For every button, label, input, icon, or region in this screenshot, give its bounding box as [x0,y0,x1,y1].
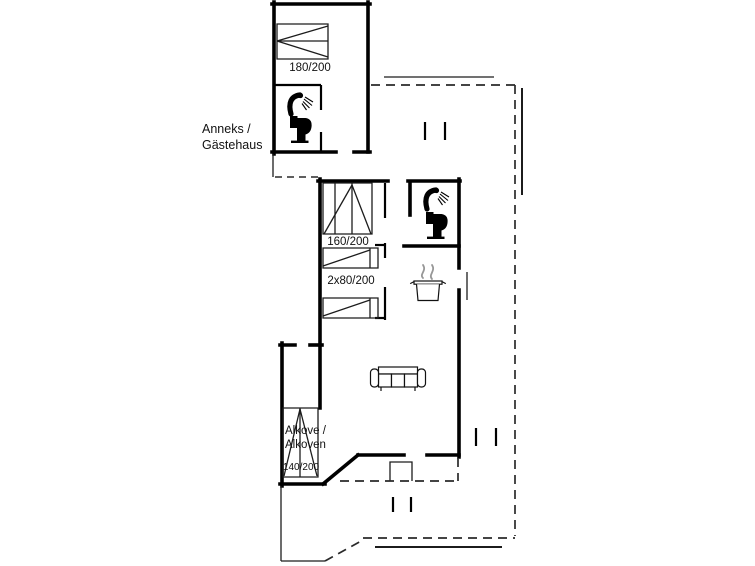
annex-label-line2: Gästehaus [202,138,262,154]
annex-label: Anneks / Gästehaus [202,122,262,153]
bedroom-partition-walls [375,183,385,320]
entrance-step [390,462,412,512]
terrace-boundary-top [371,77,522,536]
toilet-icon [290,116,312,143]
annex-walls [272,2,370,154]
alcove-bed-size-label: 140/200 [282,462,320,474]
sofa-icon [371,367,426,391]
double-bed-160 [323,183,372,234]
single-bed-80-a [323,248,378,268]
shower-icon [290,93,313,114]
alcove-label-line2: Alkoven [285,438,326,452]
cooking-pot-icon [410,265,446,301]
floor-plan-canvas: Anneks / Gästehaus 180/200 160/200 2x80/… [0,0,755,566]
shower-icon [426,188,449,209]
single-bed-80-b [323,298,378,318]
annex-label-line1: Anneks / [202,122,262,138]
double-bed-size-label: 160/200 [322,236,374,249]
alcove-label: Alkove / Alkoven [285,424,326,452]
alcove-label-line1: Alkove / [285,424,326,438]
annex-bed-size-label: 180/200 [282,62,338,75]
single-beds-size-label: 2x80/200 [323,275,379,288]
annex-connection-lines [273,154,318,177]
toilet-icon [426,212,448,239]
annex-double-bed [277,24,328,59]
